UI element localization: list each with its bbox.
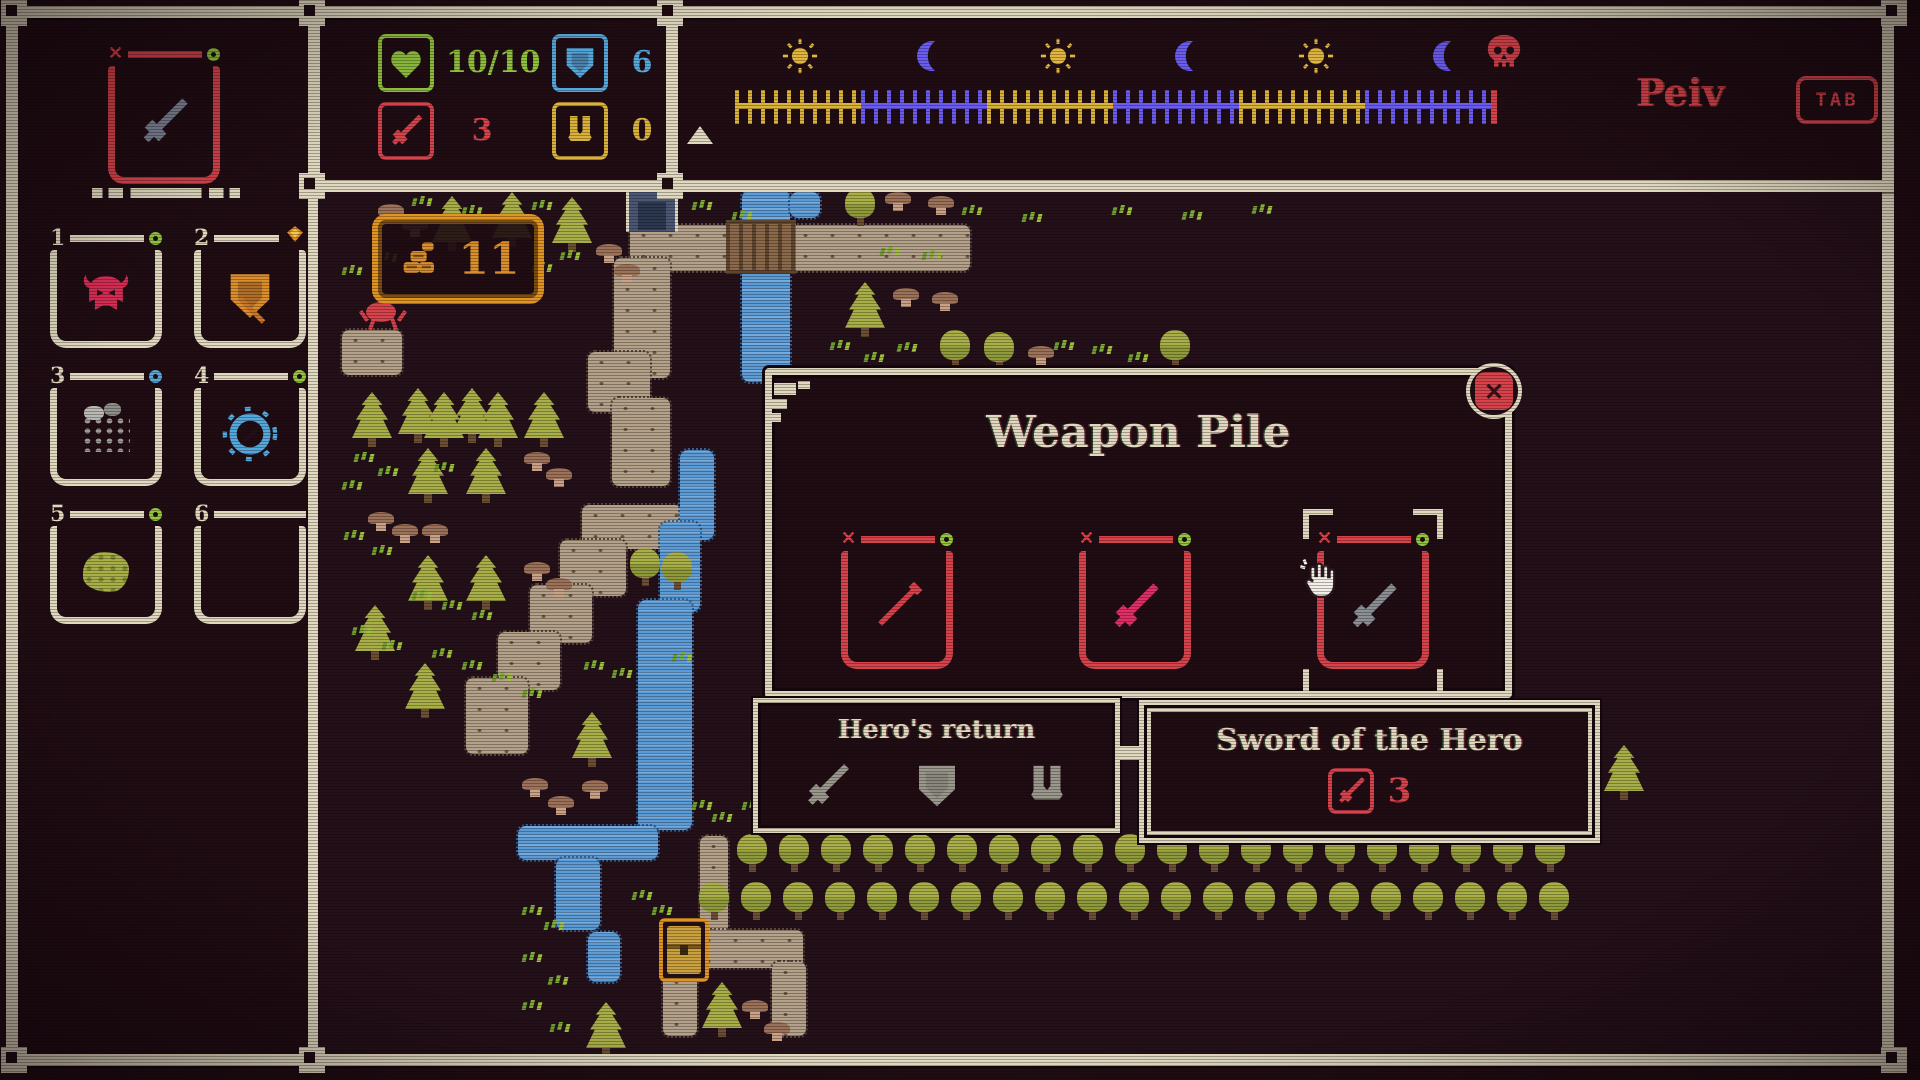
compass-item-icon [221,405,279,463]
tree-trunk [588,758,596,767]
wooden-bridge [726,220,796,274]
tree-crown [1287,882,1317,912]
grass-tuft [871,352,877,360]
mushroom-stem [532,463,542,471]
hotbar-slot-6[interactable]: 6 [194,502,306,624]
frame-joint [1,0,27,26]
mushroom [614,264,640,283]
tree [1161,882,1191,920]
stat-shield-value: 6 [616,34,668,92]
slot-header-line [861,536,935,543]
grass-tuft [1135,352,1141,360]
tree-crown [1497,882,1527,912]
tree-trunk [753,912,760,920]
mushroom [368,512,394,531]
slot-item-area [50,250,162,348]
slot-header-line [70,235,144,242]
tree-crown [1119,882,1149,912]
mushroom-stem [604,255,614,263]
tab-key-button[interactable]: TAB [1796,76,1878,124]
tree-trunk [424,601,432,610]
stat-heart-value: 10/10 [446,34,546,92]
stat-heart-icon [386,43,426,83]
tree [1455,882,1485,920]
frame-top [8,6,1894,18]
hotbar-slot-4[interactable]: 4 [194,364,306,486]
tree-crown [524,392,564,438]
frame-joint [657,173,683,199]
grass-tuft [639,890,645,898]
tree [662,552,692,590]
mushroom-stem [554,589,564,597]
tree-crown [783,882,813,912]
tree [1031,834,1061,872]
skull-icon [1482,32,1526,76]
item-stat-value: 3 [1388,771,1412,811]
slot-header: 3 [50,364,162,388]
tree [1539,882,1569,920]
tree [1203,882,1233,920]
timeline-segment-day [987,90,1113,124]
pine-tree [478,392,518,447]
tree [1160,330,1190,368]
tree-crown [1455,882,1485,912]
tree-trunk [718,1028,726,1037]
grass-tuft [837,340,843,348]
tree-trunk [414,434,422,443]
stat-sword [378,102,434,160]
slot-header-line [128,51,202,58]
helmet-item-icon [77,267,135,325]
grass-tuft [1189,210,1195,218]
selection-bracket [1303,669,1333,699]
pine-tree [1604,745,1644,800]
tree-crown [1371,882,1401,912]
player-name: Peiv [1600,70,1760,115]
tree-trunk [875,864,882,872]
tree-trunk [1421,864,1428,872]
selection-bracket [1413,509,1443,539]
grass-tuft [539,200,545,208]
tree-trunk [1173,912,1180,920]
timeline-end-tick [1491,90,1497,124]
tree-trunk [1215,912,1222,920]
tree-trunk [1509,912,1516,920]
tree-trunk [494,438,502,447]
tree [984,332,1014,370]
gold-counter: 11 [372,214,544,304]
tree-trunk [1253,864,1260,872]
grass-tuft [439,648,445,656]
tree-crown [951,882,981,912]
chest-body [667,926,701,974]
mushroom [522,778,548,797]
slot-header: 4 [194,364,306,388]
grass-tuft [1119,205,1125,213]
tree-trunk [371,651,379,660]
set-tooltip-title: Hero's return [758,715,1115,745]
tree [783,882,813,920]
tree-crown [905,834,935,864]
map-river [556,858,600,930]
equipped-weapon-slot[interactable]: ✕ [108,42,220,184]
tree-trunk [879,912,886,920]
frame-joint [657,0,683,26]
tree-trunk [1341,912,1348,920]
slot-number: 1 [50,227,65,249]
sword-item-icon [1106,578,1164,636]
indicator-ring-icon [207,48,220,61]
tree [630,548,660,586]
tree-trunk [952,360,959,368]
grass-tuft [529,952,535,960]
slot-header: 1 [50,226,162,250]
tree-trunk [1131,912,1138,920]
slot-header: ✕ [841,527,953,551]
tree [905,834,935,872]
tree-crown [1539,882,1569,912]
indicator-ring-icon [940,533,953,546]
tree-trunk [1425,912,1432,920]
grass-tuft [469,660,475,668]
tree-trunk [1172,360,1179,368]
pine-tree [408,555,448,610]
frame-left [6,6,18,1066]
indicator-ring-icon [1178,533,1191,546]
modal-title: Weapon Pile [772,407,1505,458]
slot-header: 2 [194,226,306,250]
tree-trunk [424,494,432,503]
tree-crown [947,834,977,864]
stat-sword-icon [386,111,426,151]
mushroom [548,796,574,815]
tree-crown [737,834,767,864]
grass-tuft [619,668,625,676]
gold-count: 11 [458,234,519,285]
item-stat-box [1328,768,1374,814]
frame-joint [299,1047,325,1073]
divider-hud [308,180,1894,192]
tree-crown [1604,745,1644,791]
tree-trunk [791,864,798,872]
modal-corner-step [798,381,810,389]
pine-tree [702,982,742,1037]
moon-icon [911,38,947,74]
grass-tuft [567,250,573,258]
hotbar-slot-5[interactable]: 5 [50,502,162,624]
slot-item-area [841,551,953,669]
mushroom-stem [530,789,540,797]
mushroom-stem [400,535,410,543]
grass-tuft [529,905,535,913]
tree [1077,882,1107,920]
tree [993,882,1023,920]
tree-trunk [1467,912,1474,920]
tree [947,834,977,872]
tree-crown [1077,882,1107,912]
tree [1245,882,1275,920]
slot-header: 6 [194,502,306,526]
grass-tuft [1259,204,1265,212]
tree-crown [405,663,445,709]
tree-trunk [917,864,924,872]
tree-trunk [482,494,490,503]
tree-crown [1203,882,1233,912]
tree-trunk [921,912,928,920]
tree [741,882,771,920]
weapon-pile-slot-1[interactable]: ✕ [841,527,953,669]
tree-crown [630,548,660,578]
creature-leg [397,310,407,322]
tree-crown [821,834,851,864]
frame-joint [1881,0,1907,26]
tree-crown [408,555,448,601]
tree-trunk [1127,864,1134,872]
set-shield-icon [910,759,964,813]
mushroom [932,292,958,311]
tree [951,882,981,920]
mushroom-stem [936,207,946,215]
grass-tuft [449,600,455,608]
tree [1371,882,1401,920]
tree-crown [662,552,692,582]
tree-crown [1413,882,1443,912]
tree-trunk [602,1048,610,1054]
tree [1119,882,1149,920]
stat-heart [378,34,434,92]
mushroom-stem [590,791,600,799]
tree [779,834,809,872]
grass-tuft [1029,212,1035,220]
slot-header-line [70,511,144,518]
grass-tuft [361,452,367,460]
indicator-ring-icon [149,370,162,383]
tree [821,834,851,872]
tree-trunk [1620,791,1628,800]
tree-trunk [795,912,802,920]
hotbar-slot-1[interactable]: 1 [50,226,162,348]
tree-trunk [540,438,548,447]
slot-header-line [214,235,279,242]
tree-trunk [1169,864,1176,872]
pine-tree [572,712,612,767]
tree-crown [1161,882,1191,912]
tree-crown [1245,882,1275,912]
grass-tuft [419,196,425,204]
tree-trunk [1005,912,1012,920]
pine-tree [405,663,445,718]
tree-crown [1073,834,1103,864]
grass-tuft [1061,340,1067,348]
tree-trunk [861,328,869,337]
moss-item-icon [83,552,129,592]
tree-crown [825,882,855,912]
tree-trunk [857,218,864,226]
grass-tuft [349,480,355,488]
slot-number: 2 [194,227,209,249]
grass-tuft [591,660,597,668]
tree-crown [699,882,729,912]
tree-trunk [368,438,376,447]
tree-crown [867,882,897,912]
tree-trunk [1295,864,1302,872]
tree-trunk [963,912,970,920]
tree-trunk [1383,912,1390,920]
grass-tuft [349,265,355,273]
weapon-pile-modal: ✕ Weapon Pile ✕✕✕ [765,368,1512,698]
mushroom-stem [772,1033,782,1041]
tree-trunk [1505,864,1512,872]
frame-joint [299,0,325,26]
mushroom-stem [430,535,440,543]
coins-icon [396,236,442,282]
tree-crown [909,882,939,912]
pine-tree [845,282,885,337]
mushroom-stem [376,523,386,531]
tree-trunk [1299,912,1306,920]
tree-crown [1160,330,1190,360]
tree-trunk [1257,912,1264,920]
slot-item-area [194,526,306,624]
tree-crown [408,448,448,494]
pine-tree [524,392,564,447]
chest-lock [680,945,688,955]
hotbar-slot-3[interactable]: 3 [50,364,162,486]
tree-crown [845,192,875,218]
tree-trunk [1547,864,1554,872]
sun-icon [1040,38,1076,74]
slot-item-area [50,526,162,624]
frame-joint [1,1047,27,1073]
gem-indicator-icon [284,224,306,244]
tree-crown [741,882,771,912]
sword-item-icon [1344,578,1402,636]
slot-item-area [194,250,306,348]
tree-trunk [833,864,840,872]
tree-crown [478,392,518,438]
mushroom [546,468,572,487]
close-icon: ✕ [1475,372,1513,410]
item-stat-icon [1334,774,1368,808]
tree-crown [863,834,893,864]
weapon-pile-slot-2[interactable]: ✕ [1079,527,1191,669]
moon-icon [1169,38,1205,74]
tab-key-label: TAB [1815,89,1858,111]
mushroom [546,578,572,597]
grass-tuft [699,800,705,808]
mouse-cursor-hand-icon [1296,556,1344,604]
grass-tuft [719,812,725,820]
slot-x-mark-icon: ✕ [1079,530,1094,548]
timeline-segment-day [1239,90,1365,124]
slot-header: ✕ [1079,527,1191,551]
tree-trunk [1043,864,1050,872]
item-tooltip-title: Sword of the Hero [1144,723,1595,758]
frame-bottom [8,1054,1894,1066]
pebble-icon [84,406,104,420]
tree-trunk [440,438,448,447]
pine-tree [466,555,506,610]
grass-tuft [469,205,475,213]
tree [867,882,897,920]
grass-tuft [699,200,705,208]
timeline-segment-night [861,90,987,124]
shield-item-icon [221,267,279,325]
mushroom-stem [554,479,564,487]
spear-item-icon [868,578,926,636]
tree [1035,882,1065,920]
indicator-ring-icon [293,370,306,383]
sun-icon [782,38,818,74]
map-river [588,932,620,982]
timeline-segment-night [1113,90,1239,124]
mushroom [422,524,448,543]
treasure-chest[interactable] [659,918,709,982]
skull-icon [1482,32,1526,76]
mushroom [764,1022,790,1041]
mushroom-stem [622,275,632,283]
moon-icon [1427,38,1463,74]
stat-boots [552,102,608,160]
slot-item-area [108,66,220,184]
tree [940,330,970,368]
slot-header-line [214,511,306,518]
modal-corner-step [774,383,796,395]
mushroom-stem [893,203,903,211]
tree-trunk [674,582,681,590]
mushroom [392,524,418,543]
pine-tree [466,448,506,503]
tree-trunk [837,912,844,920]
selection-bracket [1303,509,1333,539]
mushroom [928,196,954,215]
tree-trunk [482,601,490,610]
slot-number: 5 [50,503,65,525]
game-screen: ✕ 123456 10/10630 Peiv TAB 11 ✕ Weapon P… [0,0,1920,1080]
pine-tree [552,197,592,252]
tooltip-connector [1116,746,1142,760]
tree-crown [1329,882,1359,912]
tree-crown [984,332,1014,362]
map-river [790,192,820,218]
tree-trunk [1001,864,1008,872]
tree-crown [993,882,1023,912]
tree-trunk [1379,864,1386,872]
timeline-segment-night [1365,90,1491,124]
tree-trunk [421,709,429,718]
net-item-icon [82,416,130,452]
grass-tuft [479,610,485,618]
hotbar-slot-2[interactable]: 2 [194,226,306,348]
tree [737,834,767,872]
mushroom-stem [901,299,911,307]
slot-header: ✕ [108,42,220,66]
sword-item-icon [135,93,193,151]
grass-tuft [1099,344,1105,352]
tree-crown [989,834,1019,864]
map-path [630,225,970,271]
frame-joint [299,173,325,199]
set-tooltip-icons [758,759,1115,813]
slot-header: 5 [50,502,162,526]
tree [1073,834,1103,872]
stat-sword-value: 3 [452,102,512,160]
stat-shield [552,34,608,92]
grass-tuft [904,342,910,350]
mushroom [885,192,911,211]
moon-icon [1169,38,1205,74]
mushroom-stem [940,303,950,311]
